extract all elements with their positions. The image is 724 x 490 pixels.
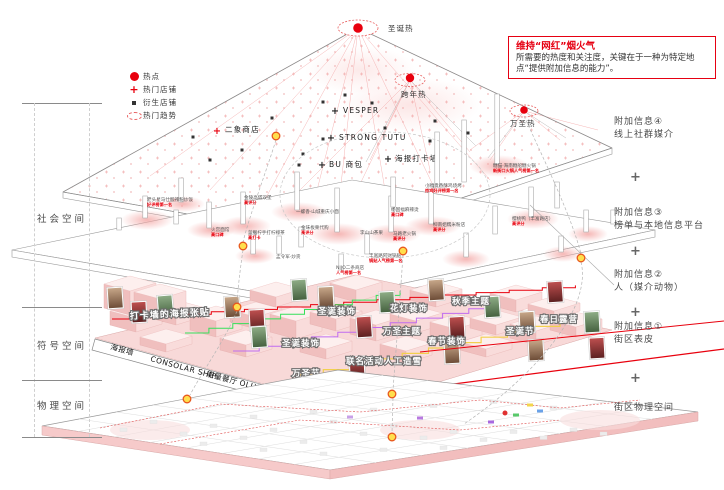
ranking-shop-name: 孟令军·炒货 — [276, 253, 301, 260]
photo-thumbnail — [546, 280, 564, 303]
ranking-shop-note: 人气榜第一名 — [335, 269, 361, 276]
shop-pillar — [207, 202, 212, 228]
derived-shop-square — [271, 117, 274, 120]
photo-thumbnail — [583, 311, 600, 334]
theme-label: 春节装饰 — [427, 336, 466, 347]
ranking-shop-note: 新街口火锅人气榜第一名 — [493, 167, 539, 174]
theme-label: 联名活动人工造雪 — [346, 356, 422, 367]
plus-marker: + — [384, 154, 392, 165]
plus-marker-red: + — [213, 126, 221, 137]
base-layer-label: 街区物理空间 — [614, 402, 722, 415]
axis-divider — [22, 380, 102, 381]
info-item-2: 附加信息② 人（媒介动物） — [614, 269, 722, 295]
legend-item-hot-trend: 热门趋势 — [125, 110, 177, 121]
plus-sign: + — [630, 244, 641, 259]
plus-marker: + — [331, 106, 339, 117]
ranking-shop-note: 高打卡 — [248, 234, 261, 241]
theme-label: 春日露营 — [539, 314, 578, 325]
axis-label-physical-space: 物理空间 — [22, 398, 102, 412]
key-message-title: 维持“网红”烟火气 — [516, 41, 708, 52]
info-item-no: 附加信息④ — [614, 116, 722, 129]
shop-pillar — [295, 172, 300, 210]
plus-marker: + — [318, 160, 326, 171]
layered-street-analysis-diagram: 圣诞热 跨年热 万圣热 + VESPER + STRONG TUTU + 海报打… — [0, 0, 724, 490]
shop-pillar — [435, 132, 440, 187]
legend-label: 热点 — [143, 71, 160, 82]
theme-label: 花灯装饰 — [390, 303, 428, 314]
peak-label-halloween: 万圣热 — [510, 118, 536, 128]
hotspot-dot — [520, 106, 528, 114]
shop-pillar — [462, 120, 467, 182]
derived-shop-square — [371, 102, 374, 105]
photo-thumbnail — [527, 339, 544, 362]
derived-shop-square — [298, 164, 301, 167]
orange-node-marker — [388, 433, 396, 441]
axis-label-symbol-space: 符号空间 — [22, 338, 102, 352]
orange-node-marker — [239, 242, 247, 250]
plus-sign: + — [630, 305, 641, 320]
legend-label: 热门趋势 — [143, 110, 177, 121]
photo-thumbnail — [106, 286, 124, 309]
info-item-name: 榜单与本地信息平台 — [614, 220, 722, 233]
shop-pillar — [529, 187, 534, 217]
theme-label: 圣诞装饰 — [281, 338, 320, 349]
axis-dashed-line — [89, 103, 90, 437]
axis-label-social-space: 社会空间 — [22, 211, 102, 225]
info-item-no: 附加信息① — [614, 321, 722, 334]
layer-physical-map — [42, 370, 698, 479]
shop-label-vesper: VESPER — [343, 106, 379, 115]
photo-thumbnail — [250, 325, 268, 348]
info-item-1: 附加信息① 街区表皮 — [614, 321, 722, 347]
theme-label: 秋季主题 — [451, 296, 490, 307]
ranking-shop-note: 炸鸡好评榜第一名 — [425, 187, 459, 194]
hot-shop-plus-icon: + — [125, 85, 143, 94]
orange-node-marker — [388, 390, 396, 398]
shop-pillar — [464, 233, 469, 257]
info-item-4: 附加信息④ 线上社群媒介 — [614, 116, 722, 142]
derived-shop-square — [467, 132, 470, 135]
orange-node-marker — [577, 254, 585, 262]
theme-label: 万圣主题 — [382, 326, 421, 337]
shop-label-strong-tutu: STRONG TUTU — [339, 133, 407, 142]
axis-dashed-line — [34, 103, 35, 437]
shop-label-bu: BU 商包 — [329, 159, 363, 169]
plus-sign: + — [630, 371, 641, 386]
ranking-shop-note: 高评分 — [301, 229, 314, 236]
photo-thumbnail — [448, 316, 465, 339]
photo-thumbnail — [317, 286, 334, 309]
ranking-shop-note: 高口碑 — [391, 211, 404, 218]
legend-label: 衍生店铺 — [143, 97, 177, 108]
info-item-name: 人（媒介动物） — [614, 282, 722, 295]
peak-label-newyear: 跨年热 — [401, 89, 427, 99]
map-color-chip — [347, 416, 353, 419]
theme-label: 圣诞装饰 — [317, 306, 356, 317]
info-item-3: 附加信息③ 榜单与本地信息平台 — [614, 207, 722, 233]
legend-item-derived-shop: 衍生店铺 — [125, 97, 177, 108]
shop-pillar — [495, 94, 500, 164]
derived-shop-square — [192, 136, 195, 139]
peak-label-christmas: 圣诞热 — [388, 23, 414, 33]
info-item-no: 附加信息③ — [614, 207, 722, 220]
legend-item-hotspot: 热点 — [125, 71, 177, 82]
map-color-chip — [417, 417, 423, 420]
orange-node-marker — [272, 132, 280, 140]
hot-trend-ellipse-icon — [125, 112, 143, 120]
shop-label-poster-wall: 海报打卡墙 — [395, 153, 439, 163]
hotspot-dot-icon — [125, 72, 143, 81]
ranking-shop-name: 李山山茶果 — [360, 229, 383, 236]
legend-label: 热门店铺 — [143, 84, 177, 95]
map-color-chip — [527, 404, 533, 407]
info-item-name: 街区表皮 — [614, 334, 722, 347]
map-color-chip — [537, 410, 543, 413]
ranking-shop-note: 好评榜第一名 — [146, 201, 172, 208]
derived-shop-square — [241, 149, 244, 152]
axis-divider — [22, 307, 102, 308]
ranking-shop-note: 高口碑 — [211, 231, 224, 238]
hotspot-dot — [353, 23, 363, 33]
shop-pillar — [117, 218, 122, 230]
hotspot-dot — [406, 74, 414, 82]
ranking-shop-note: 高评分 — [393, 235, 406, 242]
shop-pillar — [277, 236, 282, 254]
derived-shop-square — [434, 120, 437, 123]
shop-pillar — [174, 210, 179, 224]
ranking-shop-note: 锅贴人气榜第一名 — [368, 257, 403, 264]
ranking-shop-note: 高评分 — [433, 226, 446, 233]
map-color-chip — [503, 411, 508, 416]
shop-pillar — [493, 206, 498, 234]
orange-node-marker — [399, 247, 407, 255]
info-item-no: 附加信息② — [614, 269, 722, 282]
shop-pillar — [391, 177, 396, 207]
shop-pillar — [584, 210, 589, 232]
photo-thumbnail — [355, 315, 373, 338]
info-item-name: 线上社群媒介 — [614, 129, 722, 142]
shop-pillar — [559, 236, 564, 252]
derived-shop-square — [429, 140, 432, 143]
key-message-box: 维持“网红”烟火气 所需要的热度和关注度，关键在于一种为特定地点“提供附加信息的… — [508, 36, 716, 79]
ranking-shop-name: 一螺香·山城重庆小面 — [296, 208, 339, 215]
axis-divider — [22, 437, 102, 438]
derived-shop-square — [209, 159, 212, 162]
photo-thumbnail — [427, 278, 445, 301]
derived-shop-square — [322, 101, 325, 104]
theme-label: 圣诞节 — [505, 326, 535, 337]
derived-shop-square — [322, 138, 325, 141]
ranking-shop-note: 高评分 — [512, 220, 525, 227]
photo-thumbnail — [588, 337, 605, 360]
legend-item-hot-shop: + 热门店铺 — [125, 84, 177, 95]
map-color-chip — [488, 421, 494, 424]
derived-shop-square-icon — [125, 101, 143, 105]
derived-shop-square — [384, 127, 387, 130]
plus-marker: + — [327, 133, 335, 144]
legend: 热点 + 热门店铺 衍生店铺 热门趋势 — [125, 71, 177, 123]
photo-thumbnail — [290, 278, 308, 301]
key-message-body: 所需要的热度和关注度，关键在于一种为特定地点“提供附加信息的能力”。 — [516, 53, 708, 74]
plus-sign: + — [630, 170, 641, 185]
shop-label-ershop: 二象商店 — [225, 124, 260, 134]
orange-node-marker — [233, 303, 241, 311]
map-color-chip — [513, 414, 519, 417]
orange-node-marker — [183, 395, 191, 403]
derived-shop-square — [344, 94, 347, 97]
shop-pillar — [365, 234, 370, 254]
